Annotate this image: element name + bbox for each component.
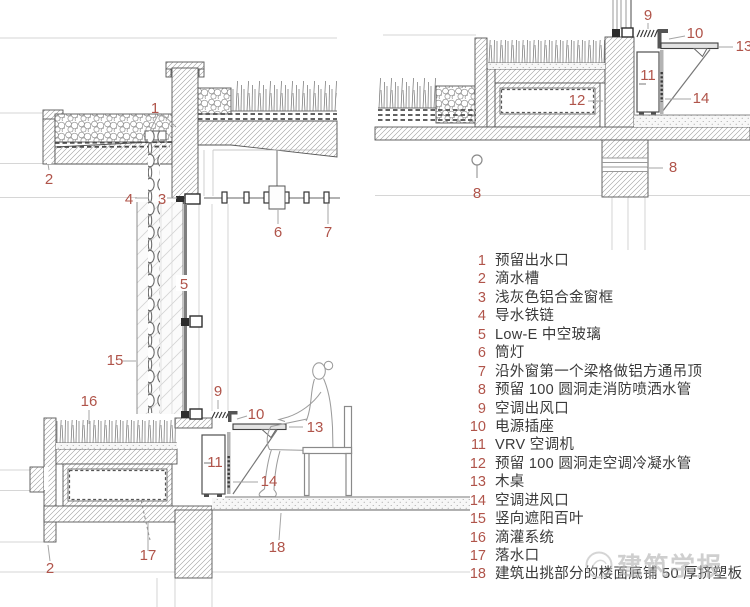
- parapet-wall-center: [172, 68, 198, 198]
- legend-item: 9空调出风口: [460, 400, 750, 418]
- air-intake-grille: [660, 50, 664, 114]
- legend-label: 预留 100 圆洞走消防喷洒水管: [495, 381, 692, 399]
- callout-14-tr: 14: [693, 90, 710, 107]
- legend-label: 滴水槽: [495, 270, 539, 288]
- window-frame-b: [622, 28, 633, 37]
- window-sill-frame-b: [190, 409, 202, 419]
- legend-item: 3浅灰色铝合金窗框: [460, 289, 750, 307]
- air-intake-grille: [227, 432, 231, 494]
- legend-label: 预留出水口: [495, 252, 569, 270]
- legend-label: 建筑出挑部分的楼面底铺 50 厚挤塑板: [495, 565, 742, 583]
- legend-label: 预留 100 圆洞走空调冷凝水管: [495, 455, 692, 473]
- legend-label: 竖向遮阳百叶: [495, 510, 584, 528]
- window-mullion: [613, 0, 631, 29]
- legend-number: 4: [460, 307, 486, 325]
- parapet-drip-notch: [44, 467, 49, 490]
- legend-item: 1预留出水口: [460, 252, 750, 270]
- legend-item: 2滴水槽: [460, 270, 750, 288]
- legend-item: 8预留 100 圆洞走消防喷洒水管: [460, 381, 750, 399]
- section-top-left: [43, 62, 340, 209]
- legend-item: 7沿外窗第一个梁格做铝方通吊顶: [460, 363, 750, 381]
- interior-floor-screed: [634, 116, 750, 128]
- callout-14-bl: 14: [261, 473, 278, 490]
- legend-label: Low-E 中空玻璃: [495, 326, 601, 344]
- legend-number: 6: [460, 344, 486, 362]
- callout-7: 7: [324, 224, 332, 241]
- legend-label: 木桌: [495, 473, 525, 491]
- window-frame-a: [612, 29, 620, 37]
- callout-12: 12: [569, 92, 586, 109]
- legend-item: 14空调进风口: [460, 492, 750, 510]
- glass-lowe: [184, 204, 187, 411]
- callout-4: 4: [125, 191, 133, 208]
- legend-item: 13木桌: [460, 473, 750, 491]
- floor-slab: [375, 127, 750, 140]
- gravel-strip-right: [198, 88, 231, 114]
- power-socket-bracket: [228, 411, 238, 422]
- sprinkler-hole-symbol: [472, 155, 482, 178]
- wall-cap-lip-right: [199, 69, 204, 77]
- planter-slab: [56, 449, 177, 464]
- lower-roof-gravel: [436, 86, 476, 123]
- callout-3: 3: [158, 191, 166, 208]
- wood-desk: [661, 43, 718, 49]
- callout-10-bl: 10: [248, 406, 265, 423]
- planter-void-inner: [68, 469, 167, 501]
- callout-13-bl: 13: [307, 419, 324, 436]
- callout-8-circle: 8: [473, 185, 481, 202]
- window-head-frame-b: [185, 194, 200, 204]
- legend-item: 15竖向遮阳百叶: [460, 510, 750, 528]
- legend-item: 6筒灯: [460, 344, 750, 362]
- interior-floor-screed: [212, 498, 470, 510]
- legend-number: 10: [460, 418, 486, 436]
- sill-sealant-hatch: [637, 30, 658, 37]
- planter-substrate: [488, 63, 605, 69]
- callout-10-tr: 10: [687, 25, 704, 42]
- parapet-wall: [43, 119, 55, 164]
- water-guiding-chain: [148, 131, 160, 413]
- legend-item: 5Low-E 中空玻璃: [460, 326, 750, 344]
- legend-item: 12预留 100 圆洞走空调冷凝水管: [460, 455, 750, 473]
- legend-number: 2: [460, 270, 486, 288]
- callout-18: 18: [269, 539, 286, 556]
- roof-slab-right: [198, 121, 337, 157]
- legend-number: 17: [460, 547, 486, 565]
- downlight: [269, 186, 285, 209]
- legend-label: 空调进风口: [495, 492, 569, 510]
- wall-cap-lip-left: [166, 69, 171, 77]
- sill-sealant-hatch: [212, 412, 229, 418]
- beam-hole: [602, 158, 648, 172]
- callout-13-tr: 13: [736, 38, 750, 55]
- slab-edge-protrusion: [30, 467, 44, 492]
- legend-number: 9: [460, 400, 486, 418]
- legend-number: 11: [460, 436, 486, 454]
- legend: 1预留出水口 2滴水槽 3浅灰色铝合金窗框 4导水铁链 5Low-E 中空玻璃 …: [460, 252, 750, 584]
- legend-item: 10电源插座: [460, 418, 750, 436]
- exterior-wall: [605, 37, 634, 127]
- callout-17: 17: [140, 547, 157, 564]
- planter-grass: [56, 420, 177, 443]
- green-roof-grass: [231, 77, 337, 111]
- legend-number: 7: [460, 363, 486, 381]
- legend-label: 筒灯: [495, 344, 525, 362]
- callout-9-bl: 9: [214, 383, 222, 400]
- legend-number: 8: [460, 381, 486, 399]
- callout-2-bl: 2: [46, 560, 54, 577]
- callout-11-bl: 11: [207, 454, 223, 471]
- callout-2: 2: [45, 171, 53, 188]
- column: [175, 510, 212, 578]
- callout-11-tr: 11: [640, 67, 656, 84]
- legend-item: 4导水铁链: [460, 307, 750, 325]
- callout-5: 5: [180, 276, 188, 293]
- callout-8-beam: 8: [669, 159, 677, 176]
- legend-label: 空调出风口: [495, 400, 569, 418]
- legend-label: 落水口: [495, 547, 539, 565]
- callout-16: 16: [81, 393, 98, 410]
- legend-number: 5: [460, 326, 486, 344]
- lower-roof-grass: [378, 78, 438, 108]
- legend-label: 沿外窗第一个梁格做铝方通吊顶: [495, 363, 702, 381]
- planter-slab: [487, 69, 605, 83]
- legend-item: 18建筑出挑部分的楼面底铺 50 厚挤塑板: [460, 565, 750, 583]
- legend-item: 11VRV 空调机: [460, 436, 750, 454]
- legend-number: 16: [460, 529, 486, 547]
- window-sill-frame-a: [181, 411, 189, 418]
- legend-label: 浅灰色铝合金窗框: [495, 289, 613, 307]
- legend-number: 12: [460, 455, 486, 473]
- planter-parapet: [475, 38, 487, 127]
- legend-number: 3: [460, 289, 486, 307]
- callout-1: 1: [151, 100, 159, 117]
- callout-9-tr: 9: [644, 7, 652, 24]
- legend-item: 16滴灌系统: [460, 529, 750, 547]
- legend-label: 导水铁链: [495, 307, 554, 325]
- planter-substrate: [56, 443, 177, 449]
- legend-number: 1: [460, 252, 486, 270]
- legend-number: 15: [460, 510, 486, 528]
- legend-label: VRV 空调机: [495, 436, 574, 454]
- legend-label: 电源插座: [495, 418, 554, 436]
- legend-label: 滴灌系统: [495, 529, 554, 547]
- legend-item: 17落水口: [460, 547, 750, 565]
- legend-number: 14: [460, 492, 486, 510]
- drip-groove: [47, 159, 52, 164]
- legend-number: 18: [460, 565, 486, 583]
- planter-void-wall: [487, 69, 495, 127]
- planter-grass: [488, 40, 605, 63]
- architectural-detail-sheet: 1 2 3 4 5 6 7 9 10 13 11 12 14 8 8 15 16…: [0, 0, 750, 607]
- callout-15: 15: [107, 352, 124, 369]
- callout-6: 6: [274, 224, 282, 241]
- legend-number: 13: [460, 473, 486, 491]
